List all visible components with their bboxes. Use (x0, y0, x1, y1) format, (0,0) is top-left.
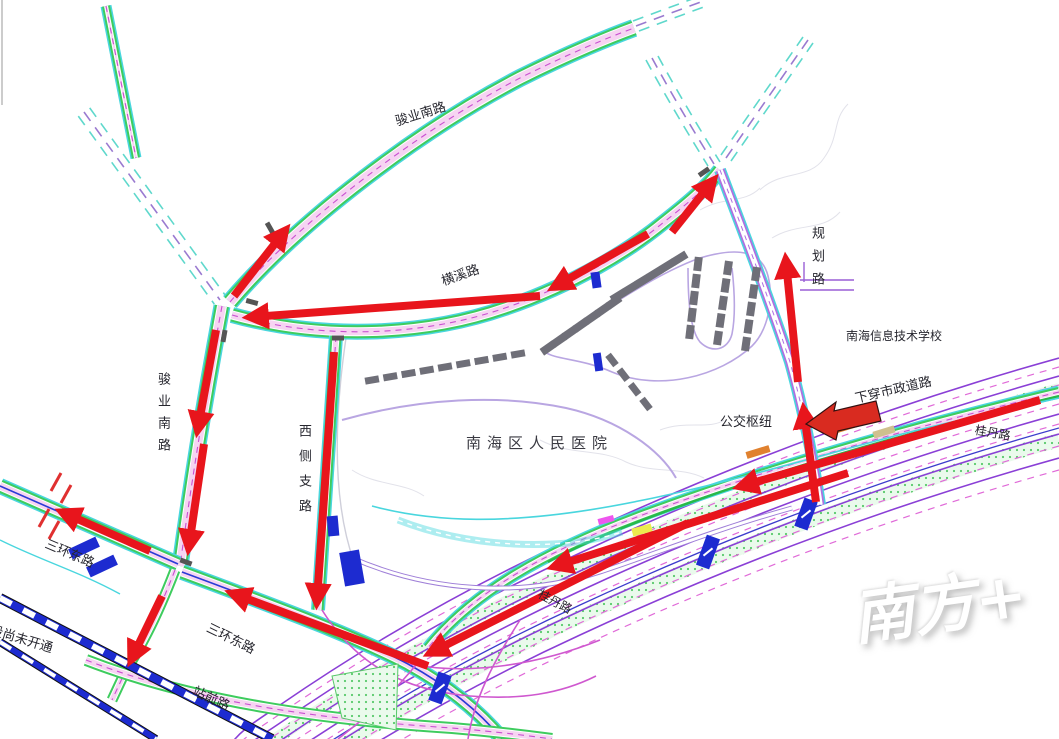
poi-label-bus-hub: 公交枢纽 (720, 416, 772, 429)
poi-label-school: 南海信息技术学校 (846, 330, 942, 342)
road-label-west-branch: 西侧支路 (297, 424, 310, 524)
poi-label-hospital: 南海区人民医院 (466, 436, 613, 451)
road-label-guihua: 规划路 (810, 226, 823, 295)
road-label-junye-south-left: 骏业南路 (156, 372, 169, 460)
terrain-layer (2, 0, 848, 562)
railway-layer (0, 598, 272, 739)
traffic-route-map: 骏业南路 横溪路 规划路 南海信息技术学校 下穿市政道路 公交枢纽 南海区人民医… (0, 0, 1059, 739)
